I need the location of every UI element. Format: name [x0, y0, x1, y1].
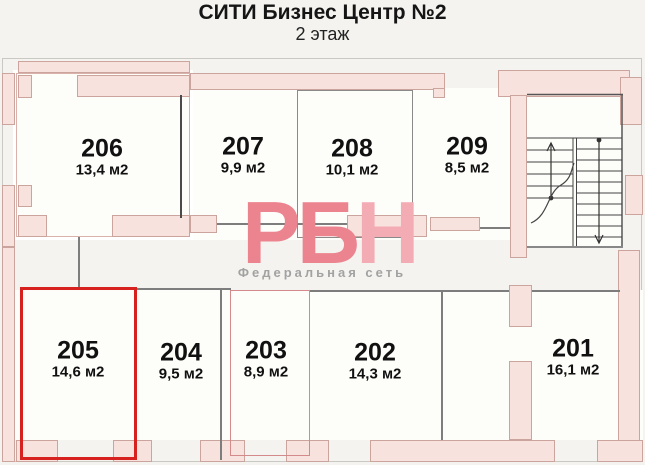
room-number: 208 [326, 136, 379, 162]
wall-segment [2, 73, 15, 125]
wall-line [78, 237, 80, 289]
floor-subtitle: 2 этаж [0, 24, 645, 45]
wall-segment [370, 440, 555, 462]
page-title: СИТИ Бизнес Центр №2 [0, 1, 645, 25]
room-number: 204 [159, 340, 203, 366]
wall-segment [18, 215, 47, 237]
wall-segment [510, 95, 527, 258]
room-number: 201 [547, 336, 600, 362]
wall-segment [112, 215, 190, 237]
wall-segment [620, 77, 642, 125]
room-area: 9,9 м2 [221, 160, 265, 179]
wall-line [441, 292, 443, 440]
wall-segment [597, 440, 643, 462]
wall-segment [77, 75, 190, 97]
wall-segment [190, 215, 217, 233]
room-area: 14,3 м2 [349, 366, 402, 385]
room-number: 209 [445, 134, 489, 160]
wall-segment [2, 185, 15, 247]
room-area: 9,5 м2 [159, 366, 203, 385]
room-208-label: 208 10,1 м2 [326, 136, 379, 181]
wall-line [220, 288, 222, 460]
wall-segment [433, 88, 445, 98]
wall-segment [18, 61, 190, 73]
wall-line [137, 288, 231, 290]
room-number: 206 [76, 136, 129, 162]
room-area: 13,4 м2 [76, 162, 129, 181]
room-202-label: 202 14,3 м2 [349, 340, 402, 385]
room-number: 207 [221, 134, 265, 160]
staircase-drawing [527, 93, 623, 249]
room-number: 203 [244, 338, 288, 364]
wall-line [310, 290, 442, 292]
room-area: 8,9 м2 [244, 364, 288, 383]
room-206-label: 206 13,4 м2 [76, 136, 129, 181]
room-area: 16,1 м2 [547, 362, 600, 381]
watermark-logo: РБН [242, 189, 416, 277]
room-201-label: 201 16,1 м2 [547, 336, 600, 381]
room-area: 10,1 м2 [326, 162, 379, 181]
floor-plan-page: { "title": { "line1": "СИТИ Бизнес Центр… [0, 0, 645, 465]
watermark-subtitle: Федеральная сеть [238, 265, 406, 280]
wall-segment [509, 361, 532, 440]
wall-segment [18, 185, 32, 207]
wall-segment [430, 217, 480, 231]
wall-segment [18, 75, 32, 98]
wall-line [532, 290, 620, 292]
room-207-label: 207 9,9 м2 [221, 134, 265, 179]
door-line [480, 227, 510, 229]
wall-line [442, 290, 509, 292]
wall-segment [509, 285, 532, 327]
wall-segment [618, 250, 640, 462]
room-area: 8,5 м2 [445, 160, 489, 179]
room-203-label: 203 8,9 м2 [244, 338, 288, 383]
wall-segment [625, 175, 643, 215]
room-204-label: 204 9,5 м2 [159, 340, 203, 385]
wall-segment [2, 247, 15, 462]
room-number: 202 [349, 340, 402, 366]
room-205-highlight [20, 287, 137, 460]
room-209-label: 209 8,5 м2 [445, 134, 489, 179]
wall-line [180, 95, 182, 218]
wall-segment [190, 73, 445, 90]
